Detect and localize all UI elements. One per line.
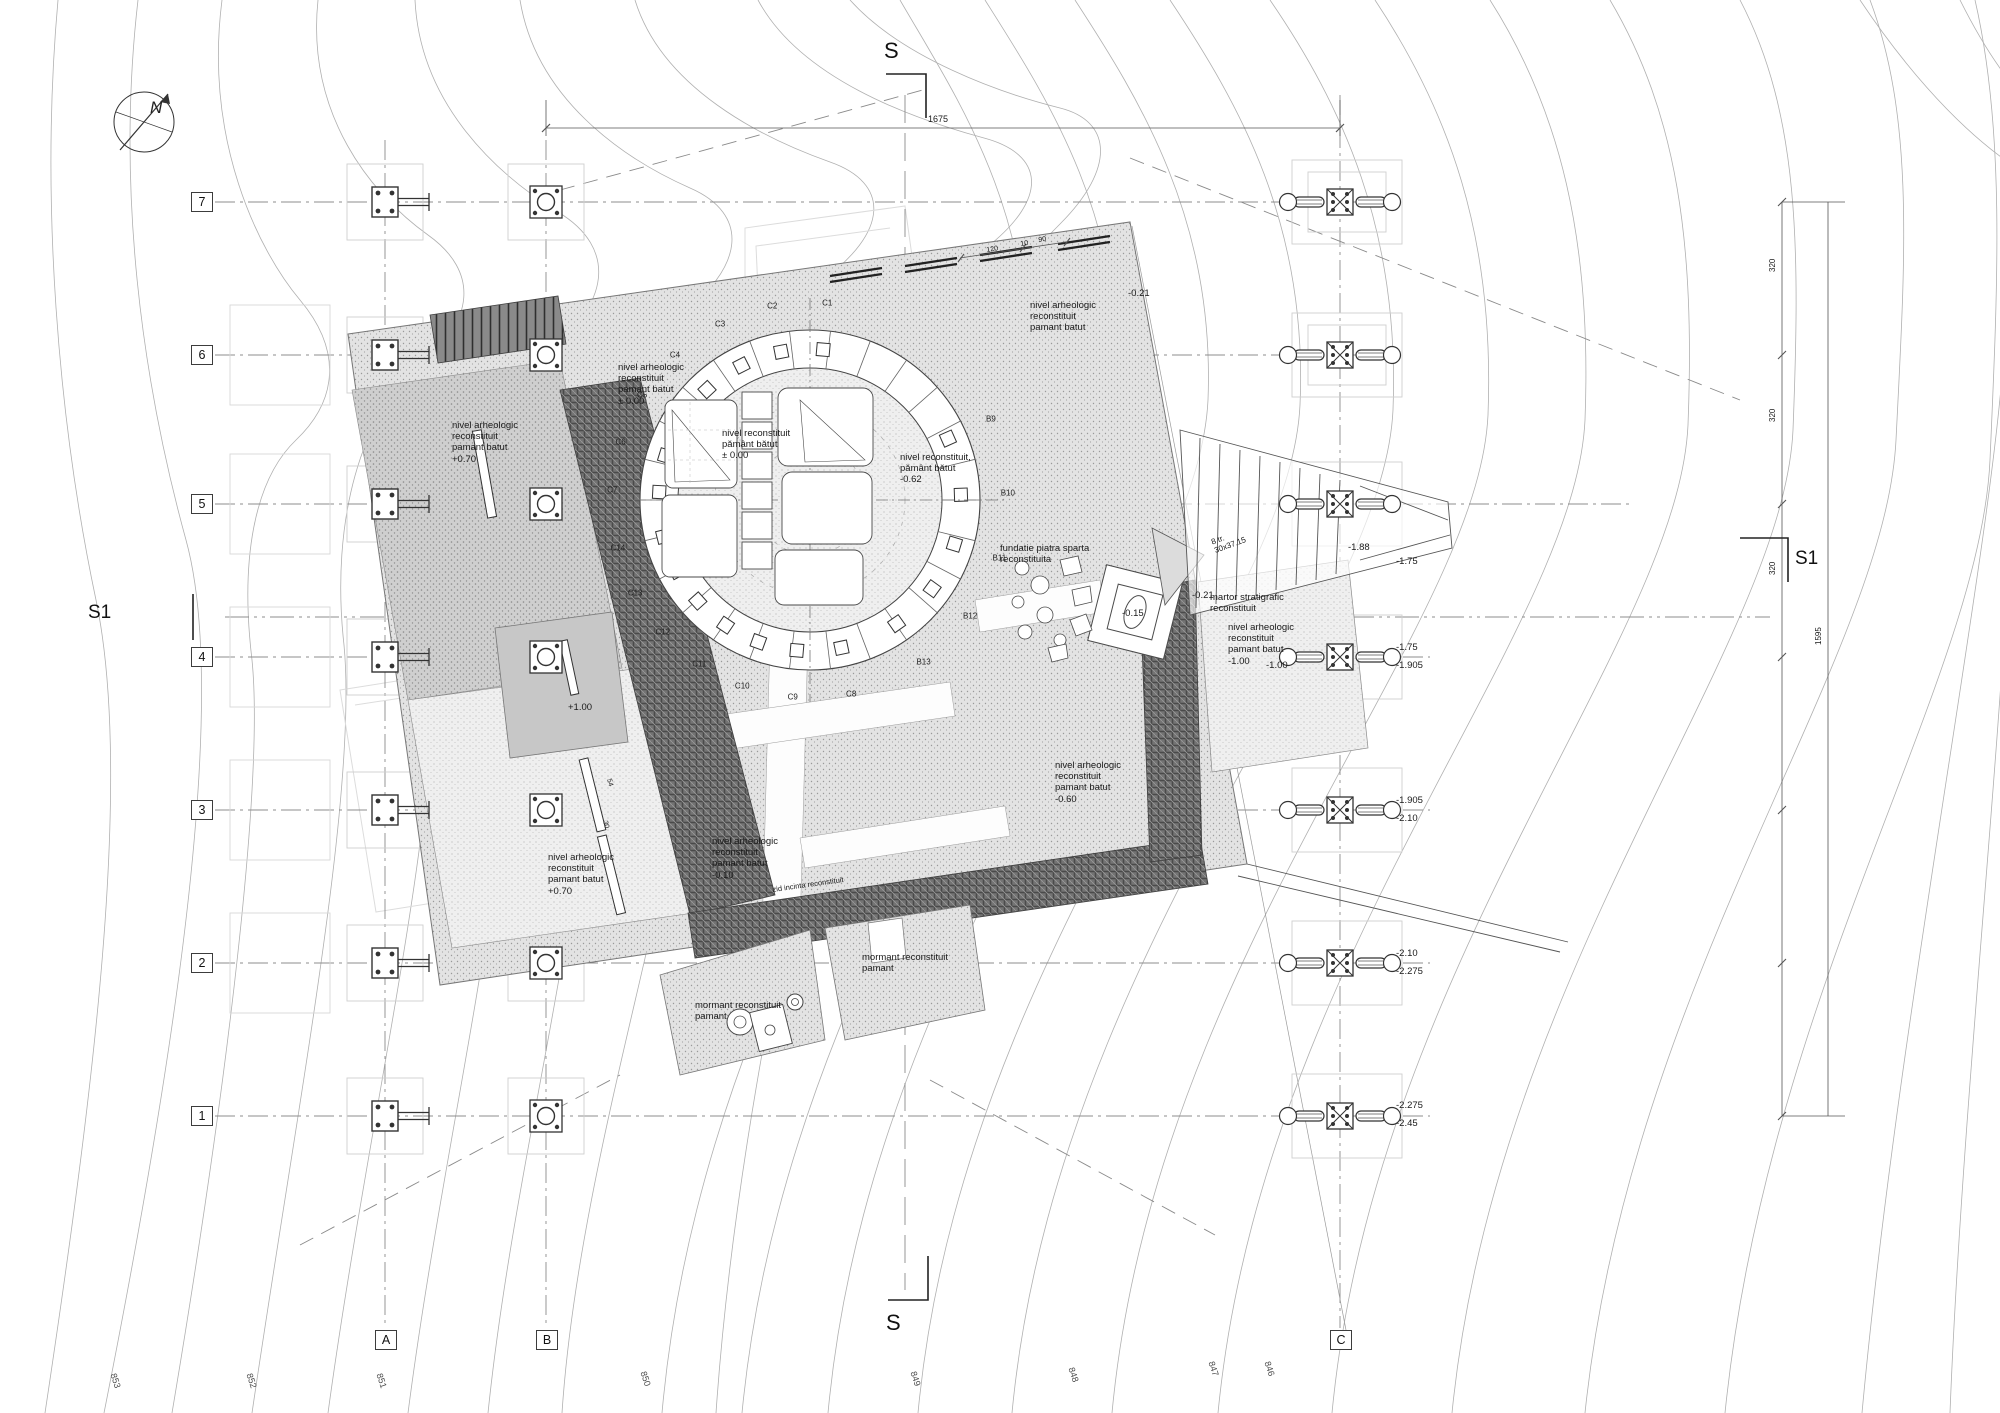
column-plinth-C1	[816, 343, 830, 357]
column-plinth-B10	[954, 488, 967, 501]
site-plan-sheet: N S S S1 S1 nivel arheologic reconstitui…	[0, 0, 2000, 1413]
column-plinth-C2	[774, 344, 789, 359]
column-plinth-C8	[834, 640, 849, 655]
plus-one-meter-zone	[495, 612, 628, 758]
site-plan-drawing	[0, 0, 2000, 1413]
north-arrow	[114, 92, 174, 152]
column-plinth-C7	[652, 485, 666, 499]
column-plinth-C9	[790, 643, 804, 657]
